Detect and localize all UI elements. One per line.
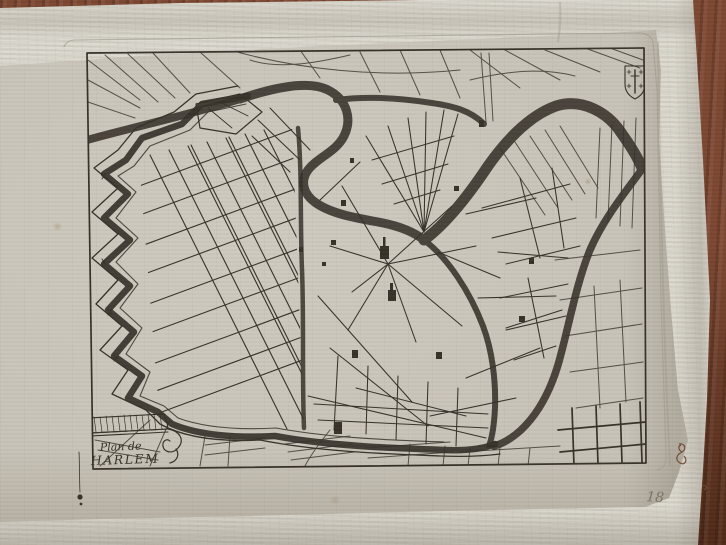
- paper-crease: [558, 2, 670, 466]
- river-meander: [240, 85, 424, 240]
- great-church-icon: [380, 246, 389, 259]
- ink-flourish-mark: [677, 444, 706, 490]
- east-moat: [494, 172, 640, 446]
- cartouche-line2: HARLEM: [90, 451, 160, 468]
- field-grid-southeast: [558, 402, 646, 466]
- south-gate-icon: [334, 422, 342, 434]
- photo-of-antique-map: Plan de HARLEM 18: [0, 0, 726, 545]
- map-interior: [87, 48, 646, 466]
- church-icon: [388, 290, 396, 301]
- river-north-channel: [336, 98, 484, 124]
- engraved-map-plate: Plan de HARLEM 18: [0, 0, 726, 545]
- river-band: [87, 85, 642, 446]
- haarlem-coat-of-arms-icon: [625, 66, 645, 99]
- handwritten-page-number: 18: [646, 489, 665, 506]
- ink-blot-mark: [77, 452, 82, 505]
- engraving: [77, 48, 646, 505]
- church-icon: [352, 350, 358, 358]
- west-street-grid: [110, 124, 414, 455]
- bridge-gate-icon: [479, 120, 484, 127]
